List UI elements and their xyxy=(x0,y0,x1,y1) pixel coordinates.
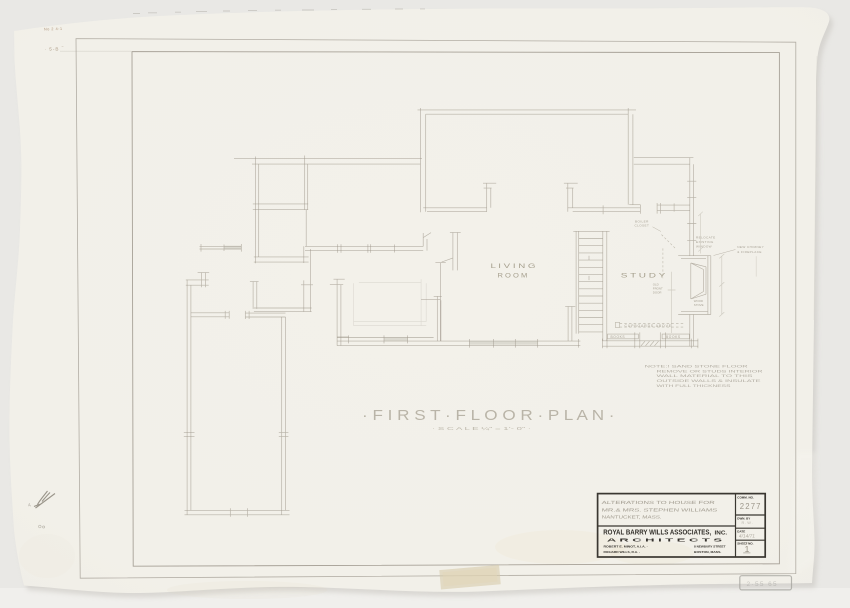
svg-text:R O O M: R O O M xyxy=(498,272,528,279)
svg-text:S T U D Y: S T U D Y xyxy=(621,272,666,279)
svg-text:RELOCATE: RELOCATE xyxy=(696,235,716,239)
svg-text:BOILER: BOILER xyxy=(635,219,649,223)
svg-text:4/14/71: 4/14/71 xyxy=(739,534,756,540)
svg-text:DOOR: DOOR xyxy=(653,291,662,295)
svg-text:WALL MATERIAL TO THIS: WALL MATERIAL TO THIS xyxy=(657,374,755,378)
svg-text:REMOVE OR STUDS INTERIOR: REMOVE OR STUDS INTERIOR xyxy=(657,369,764,373)
svg-text:No 2 4-1: No 2 4-1 xyxy=(44,27,63,32)
svg-text:· S C A L E ¼” = 1’- 0” ·: · S C A L E ¼” = 1’- 0” · xyxy=(432,426,532,432)
svg-text:STOVE: STOVE xyxy=(694,303,704,307)
svg-text:ROBERT E. MINOT, A.I.A. ·: ROBERT E. MINOT, A.I.A. · xyxy=(604,545,648,549)
svg-text:R.W.: R.W. xyxy=(742,521,754,525)
svg-text:DWN. BY: DWN. BY xyxy=(737,516,750,520)
svg-text:BOOKS: BOOKS xyxy=(666,335,681,339)
svg-text:2277: 2277 xyxy=(740,502,762,511)
svg-text:8 NEWBURY STREET: 8 NEWBURY STREET xyxy=(694,545,726,549)
svg-text:INC.: INC. xyxy=(715,531,728,537)
svg-text:· F I R S T · F L O O R · P L: · F I R S T · F L O O R · P L A N · xyxy=(362,408,615,424)
svg-text:ALTERATIONS TO HOUSE FOR: ALTERATIONS TO HOUSE FOR xyxy=(601,500,716,505)
svg-text:WITH FULL THICKNESS: WITH FULL THICKNESS xyxy=(657,384,732,388)
svg-text:WINDOW: WINDOW xyxy=(696,244,712,248)
svg-text:NEW CHIMNEY: NEW CHIMNEY xyxy=(737,245,764,249)
svg-text:MR.& MRS. STEPHEN WILLIAMS: MR.& MRS. STEPHEN WILLIAMS xyxy=(601,508,717,513)
svg-text:· 5-B ‾: · 5-B ‾ xyxy=(45,46,65,52)
svg-text:OUTSIDE WALLS & INSULATE: OUTSIDE WALLS & INSULATE xyxy=(657,379,762,383)
svg-text:CLOSET: CLOSET xyxy=(635,224,650,228)
svg-text:ROYAL BARRY WILLS ASSOCIATES,: ROYAL BARRY WILLS ASSOCIATES, xyxy=(603,530,711,537)
svg-text:L I V I N G: L I V I N G xyxy=(491,263,536,270)
svg-text:NANTUCKET, MASS.: NANTUCKET, MASS. xyxy=(601,515,662,520)
svg-text:1: 1 xyxy=(745,544,750,554)
svg-text:CUPBOARDS ABOVE: CUPBOARDS ABOVE xyxy=(625,324,672,328)
svg-text:BOOKS: BOOKS xyxy=(611,335,626,339)
svg-text:EXISTING: EXISTING xyxy=(696,240,714,244)
svg-text:A R C H I T E C T S: A R C H I T E C T S xyxy=(607,538,724,544)
svg-text:COMM. NO.: COMM. NO. xyxy=(737,496,754,500)
svg-text:2·55 65: 2·55 65 xyxy=(747,581,778,588)
svg-text:DATE: DATE xyxy=(737,529,745,533)
svg-text:BOSTON, MASS.: BOSTON, MASS. xyxy=(694,550,722,554)
svg-text:NOTE:! SAND STONE FLOOR: NOTE:! SAND STONE FLOOR xyxy=(645,364,749,368)
svg-text:RICHARD WILLS, R.A. ·: RICHARD WILLS, R.A. · xyxy=(604,550,641,554)
svg-text:& FIREPLACE: & FIREPLACE xyxy=(737,250,762,254)
